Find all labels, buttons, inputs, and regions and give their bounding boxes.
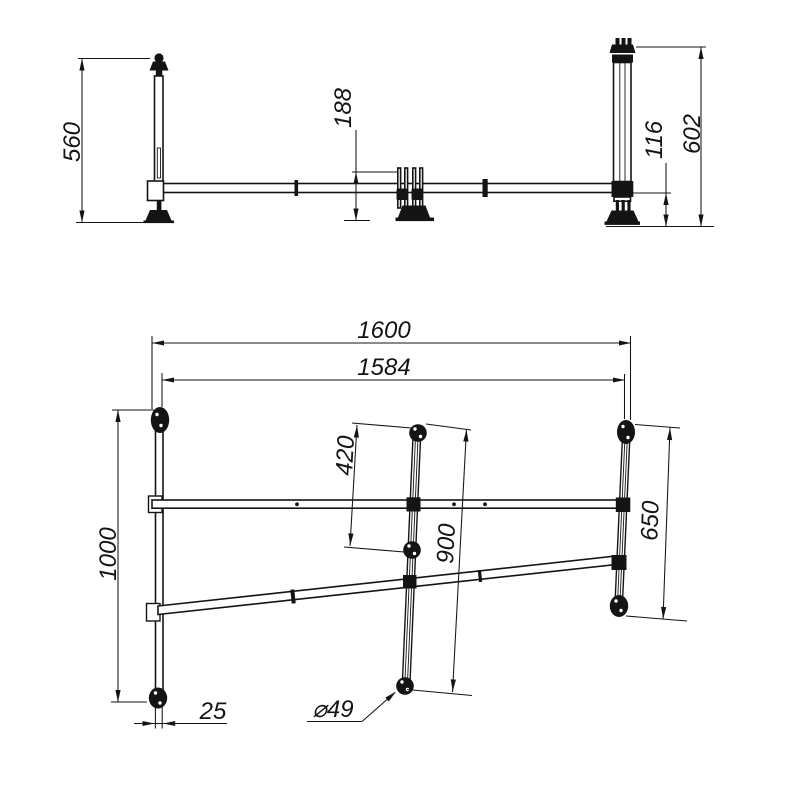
cross-joint bbox=[612, 555, 627, 570]
dim-25: 25 bbox=[134, 698, 227, 729]
dim-diameter-label: ⌀49 bbox=[312, 696, 353, 723]
beam-joint-tick bbox=[483, 179, 488, 197]
technical-drawing: 560 188 116 602 bbox=[0, 0, 800, 800]
dim-188-label: 188 bbox=[330, 87, 357, 128]
support-knob bbox=[397, 189, 408, 201]
front-right-post bbox=[605, 38, 641, 225]
front-beam bbox=[152, 179, 613, 197]
plan-right-member bbox=[615, 441, 629, 597]
beam-weld-dot bbox=[295, 502, 299, 506]
ball-joints bbox=[149, 407, 635, 709]
ball-joint bbox=[617, 420, 635, 444]
dim-420-label: 420 bbox=[331, 434, 360, 476]
dim-900-label: 900 bbox=[432, 522, 461, 564]
post-cap bbox=[610, 45, 636, 54]
ball-joint bbox=[403, 541, 421, 559]
ball-joint bbox=[610, 595, 628, 617]
dim-1000-label: 1000 bbox=[95, 527, 122, 581]
ball-joint bbox=[149, 688, 167, 709]
dim-602-label: 602 bbox=[679, 114, 706, 154]
ball-joint bbox=[396, 677, 414, 695]
dim-1000: 1000 bbox=[95, 410, 154, 702]
plan-left-member bbox=[147, 428, 164, 690]
front-left-post bbox=[144, 53, 175, 223]
plan-view: 1600 1584 1000 420 bbox=[95, 317, 687, 729]
post-top-ball bbox=[154, 53, 163, 62]
plan-middle-strut bbox=[402, 432, 421, 687]
support-foot bbox=[398, 206, 430, 218]
front-center-support bbox=[396, 168, 435, 221]
dim-650-label: 650 bbox=[636, 500, 664, 542]
post-beam-block bbox=[612, 181, 634, 197]
dim-420: 420 bbox=[331, 423, 411, 552]
dim-1584-label: 1584 bbox=[357, 354, 410, 381]
plan-cross-beam bbox=[152, 500, 617, 508]
post-beam-bracket bbox=[148, 181, 164, 201]
dim-188: 188 bbox=[330, 87, 398, 220]
ball-joint bbox=[151, 407, 169, 433]
beam-weld-dot bbox=[483, 502, 487, 506]
beam-weld-dot bbox=[452, 502, 456, 506]
cross-joint bbox=[407, 497, 421, 511]
cross-joint bbox=[616, 498, 631, 513]
post-foot bbox=[146, 210, 172, 221]
plan-slanted-beam bbox=[158, 556, 616, 615]
beam-joint-tick bbox=[295, 180, 299, 196]
post-cap bbox=[150, 62, 169, 71]
dim-116-label: 116 bbox=[641, 120, 668, 159]
dim-116: 116 bbox=[633, 120, 671, 226]
dim-650: 650 bbox=[626, 425, 687, 622]
dim-25-label: 25 bbox=[199, 698, 227, 725]
ball-joint bbox=[409, 424, 427, 442]
dim-560-label: 560 bbox=[59, 121, 86, 162]
dim-560: 560 bbox=[59, 59, 150, 223]
post-foot bbox=[607, 211, 639, 222]
dim-1600-label: 1600 bbox=[357, 317, 411, 344]
callout-diameter-49: ⌀49 bbox=[307, 690, 398, 723]
front-view: 560 188 116 602 bbox=[59, 38, 714, 227]
dim-1584: 1584 bbox=[162, 354, 625, 419]
support-knob bbox=[412, 189, 424, 201]
cross-joint bbox=[403, 575, 417, 589]
